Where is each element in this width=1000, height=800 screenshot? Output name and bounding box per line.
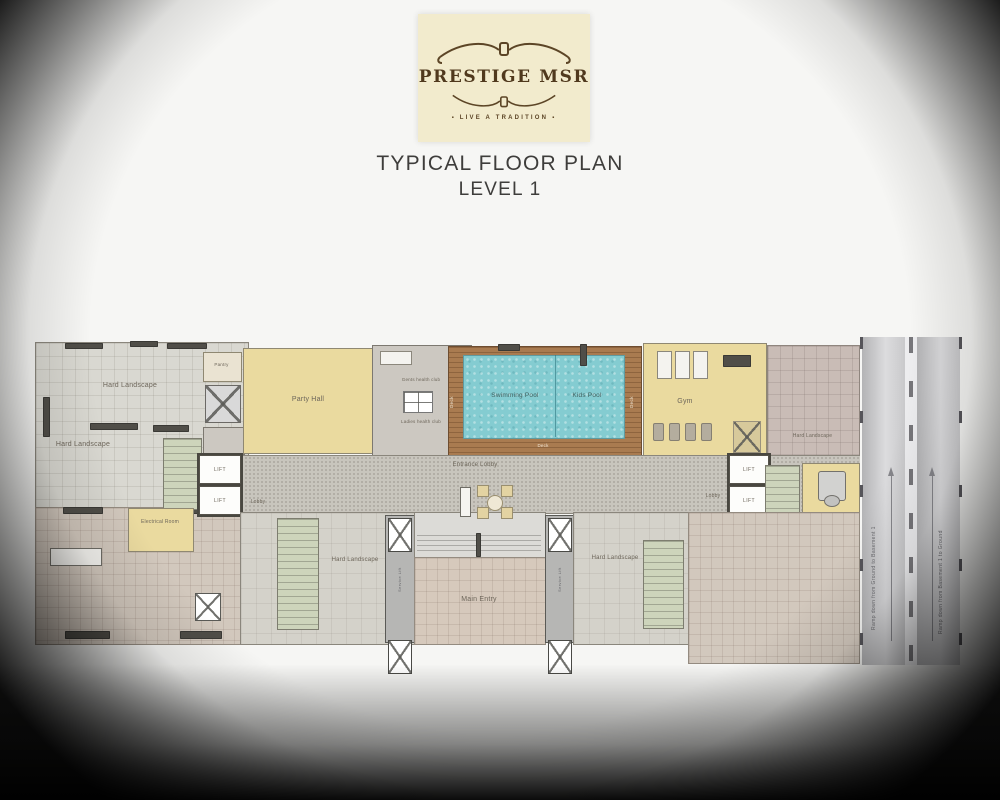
lift: LIFT: [199, 486, 241, 515]
logo-flourish-top: [434, 35, 574, 65]
ramp-right-label: Ramp down from Basement 1 to Ground: [938, 507, 948, 657]
planter: [63, 507, 103, 514]
lift: LIFT: [729, 455, 769, 484]
ramp-lane: [862, 337, 905, 665]
pool-divider: [555, 355, 556, 437]
service-lift-column: Service Lift: [385, 515, 415, 643]
service-lift: [388, 518, 412, 552]
ramp-edge-wall: [860, 337, 863, 665]
planter: [130, 341, 158, 347]
cable-machine: [733, 421, 761, 453]
planter: [580, 344, 587, 366]
lobby-bench: [460, 487, 471, 517]
utility-shaft: [205, 385, 241, 423]
deck-label: Deck: [525, 443, 561, 449]
lobby-label: Lobby: [238, 499, 278, 506]
planter: [498, 344, 520, 351]
planter: [65, 631, 110, 639]
main-entry-label: Main Entry: [444, 595, 514, 604]
entrance-lobby-label: Entrance Lobby: [440, 462, 510, 470]
brand-tagline: LIVE A TRADITION: [452, 115, 557, 121]
planter: [153, 425, 189, 432]
party-hall-label: Party Hall: [273, 395, 343, 404]
hard-landscape-label: Hard Landscape: [320, 557, 390, 565]
hard-landscape-label: Hard Landscape: [580, 555, 650, 563]
gym-bench: [701, 423, 712, 441]
lift-label: LIFT: [214, 498, 226, 504]
ramp-edge-wall: [959, 337, 962, 665]
lift-block: LIFT LIFT: [197, 453, 243, 517]
title-line1: TYPICAL FLOOR PLAN: [0, 152, 1000, 176]
brand-name: PRESTIGE MSR: [419, 67, 590, 87]
hard-landscape-label: Hard Landscape: [775, 433, 850, 440]
service-lift-label: Service Lift: [557, 560, 562, 600]
planter: [167, 343, 207, 349]
service-shaft: [195, 593, 221, 621]
title-line2: LEVEL 1: [0, 179, 1000, 201]
pantry-label: Pantry: [203, 362, 240, 368]
bench: [50, 548, 102, 566]
staircase: [643, 540, 684, 629]
toilet-block: [203, 427, 245, 455]
lobby-chair: [501, 485, 513, 497]
hard-landscape-label: Hard Landscape: [90, 381, 170, 390]
service-lift-label: Service Lift: [397, 560, 402, 600]
electrical-room: [128, 508, 194, 552]
deck-label: Deck: [629, 387, 634, 417]
swimming-pool-label: Swimming Pool: [475, 392, 555, 400]
ramp-direction-arrow: [891, 473, 892, 641]
service-lift: [548, 518, 572, 552]
treadmill: [657, 351, 672, 379]
logo-flourish-bottom: [444, 89, 564, 113]
lift-label: LIFT: [743, 467, 755, 473]
washroom-fixtures: [403, 391, 433, 413]
gym-bench: [653, 423, 664, 441]
logo-card: PRESTIGE MSR LIVE A TRADITION: [418, 14, 590, 142]
ramp-left-label: Ramp down from Ground to Basement 1: [871, 503, 881, 653]
transformer-cap: [824, 495, 840, 507]
gym-bench: [669, 423, 680, 441]
floor-plan: Hard Landscape Hard Landscape Pantry Par…: [35, 335, 963, 667]
staircase: [277, 518, 319, 630]
lobby-chair: [501, 507, 513, 519]
lift: LIFT: [199, 455, 241, 484]
gym-label: Gym: [665, 397, 705, 406]
entry-post: [476, 533, 481, 557]
gym-bench: [685, 423, 696, 441]
service-lift: [548, 640, 572, 674]
service-lift: [388, 640, 412, 674]
gym-shelf: [723, 355, 751, 367]
paving-area-bottom-right: [688, 512, 860, 664]
planter: [90, 423, 138, 430]
hard-landscape-label: Hard Landscape: [43, 440, 123, 449]
deck-label: Deck: [449, 387, 454, 417]
locker-counter: [380, 351, 412, 365]
ramp-direction-arrow: [932, 473, 933, 641]
lift-label: LIFT: [743, 498, 755, 504]
page-title: TYPICAL FLOOR PLAN LEVEL 1: [0, 152, 1000, 201]
planter: [180, 631, 222, 639]
planter: [65, 343, 103, 349]
service-lift-column: Service Lift: [545, 515, 575, 643]
treadmill: [675, 351, 690, 379]
lift: LIFT: [729, 486, 769, 515]
planter: [43, 397, 50, 437]
ramp-divider-dashes: [909, 337, 913, 665]
lobby-chair: [477, 485, 489, 497]
treadmill: [693, 351, 708, 379]
lift-label: LIFT: [214, 467, 226, 473]
electrical-room-label: Electrical Room: [130, 519, 190, 526]
hard-landscape-area-top-right: [767, 345, 860, 460]
lobby-chair: [477, 507, 489, 519]
kids-pool-label: Kids Pool: [557, 392, 617, 400]
